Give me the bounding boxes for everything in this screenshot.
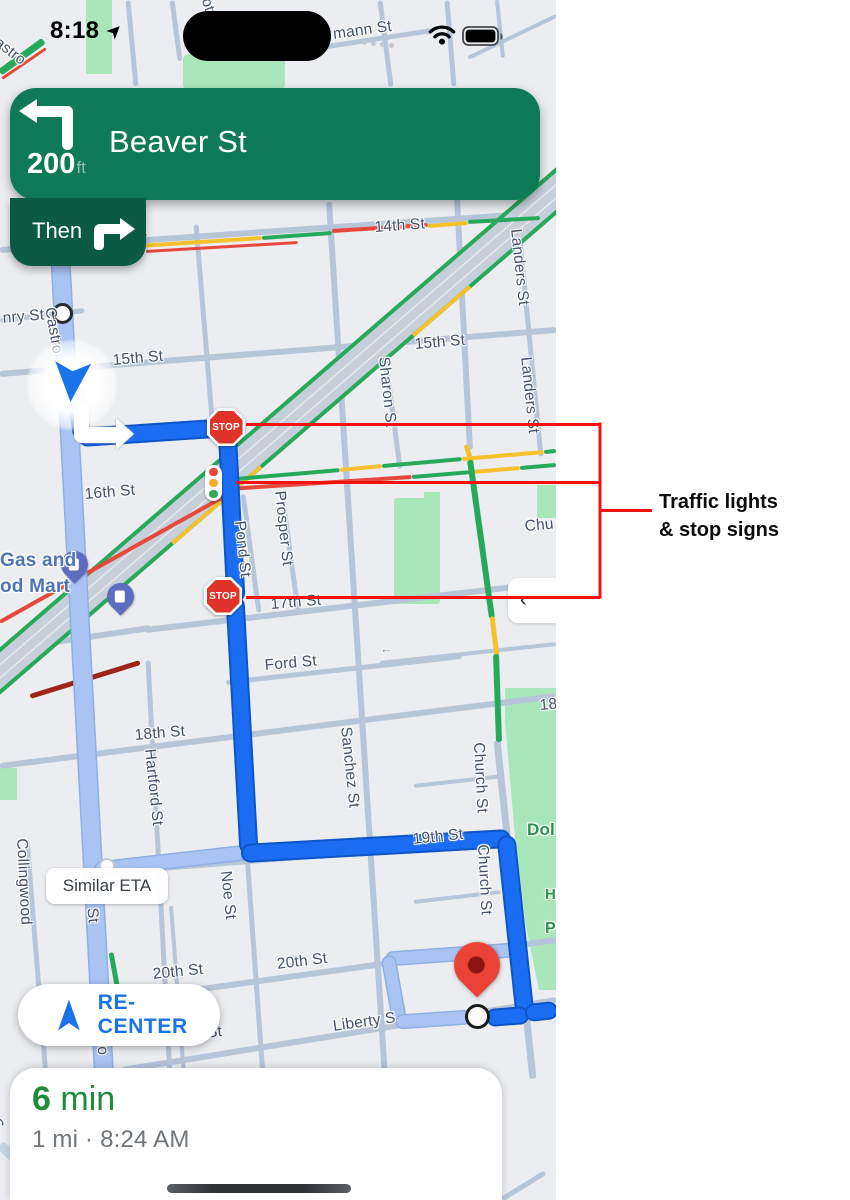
map-label: 15th St (112, 348, 164, 370)
traffic-light-icon (205, 465, 222, 501)
map-label: Prosper St (270, 490, 296, 567)
map-label: Dol (527, 820, 555, 840)
trip-info-sheet[interactable]: 6 min 1 mi · 8:24 AM (10, 1068, 502, 1200)
traffic-segment (493, 654, 502, 742)
collapse-panel-button[interactable]: ‹ (508, 578, 556, 623)
road-line (499, 1170, 547, 1200)
battery-icon (462, 26, 505, 52)
active-route (526, 1003, 556, 1020)
phone-notch (183, 11, 331, 61)
road-line (126, 0, 139, 86)
active-route (243, 831, 510, 861)
map-label: P (545, 920, 556, 938)
similar-eta-chip[interactable]: Similar ETA (46, 868, 168, 904)
navigation-banner[interactable]: 200ft Beaver St (10, 88, 540, 200)
then-maneuver-chip[interactable]: Then (10, 198, 146, 266)
home-indicator[interactable] (167, 1184, 351, 1193)
traffic-segment (382, 457, 462, 468)
map-label: ← (380, 641, 393, 656)
annotation-text: Traffic lights & stop signs (659, 488, 779, 544)
traffic-segment (472, 466, 520, 474)
road-line (378, 0, 394, 86)
wifi-icon (428, 25, 456, 50)
annotation-line (246, 423, 600, 426)
map-label: Sharon St (374, 356, 399, 428)
recenter-button[interactable]: RE-CENTER (18, 984, 220, 1046)
traffic-segment (544, 449, 556, 454)
recenter-label: RE-CENTER (98, 991, 220, 1039)
active-route (228, 598, 257, 853)
google-maps-navigation-screen[interactable]: STOP STOP ott Stmann Stastronry StCastro… (0, 0, 556, 1200)
destination-pin[interactable] (444, 932, 509, 997)
park-area (394, 498, 440, 604)
navigation-arrow-icon (56, 1000, 82, 1031)
map-label: Landers St (506, 228, 532, 306)
road-line (414, 774, 504, 788)
then-label: Then (32, 218, 82, 244)
status-time: 8:18 (50, 17, 99, 45)
map-label: Chu (524, 515, 555, 535)
annotation-line (236, 481, 600, 484)
road-line (170, 0, 183, 60)
map-label: 16th St (84, 482, 136, 504)
map-label: t S (0, 1108, 7, 1134)
road-line (380, 642, 556, 665)
traffic-segment (462, 450, 544, 461)
road-noe (194, 224, 216, 430)
map-label: 18 (539, 695, 556, 714)
map-label: H (545, 886, 556, 903)
map-label: nry St (2, 306, 45, 328)
destination-base-dot (465, 1004, 490, 1029)
map-label: Church St (473, 844, 495, 916)
park-area (424, 492, 440, 506)
map-label: 20th St (152, 961, 204, 984)
map-label: Hartford St (140, 748, 166, 827)
map-label: Sanchez St (336, 726, 362, 809)
map-label: Collingwood (12, 838, 35, 925)
map-label: 14th St (374, 215, 426, 236)
map-label: Noe St (216, 870, 239, 920)
active-route (487, 1008, 527, 1025)
traffic-segment (520, 463, 556, 470)
map-label: od Mart (0, 576, 70, 598)
map-label: 15th St (414, 332, 466, 354)
map-label: Church St (469, 742, 491, 814)
park-area (0, 768, 17, 800)
map-label: Gas and (0, 550, 76, 572)
road-noe (245, 854, 266, 1076)
eta-time: 6 min (32, 1080, 115, 1119)
poi-dots (362, 40, 367, 45)
maneuver-street: Beaver St (109, 124, 247, 160)
road-church (454, 198, 473, 450)
annotation-line (600, 509, 652, 512)
maneuver-distance: 200ft (27, 148, 86, 181)
annotated-screenshot-page: STOP STOP ott Stmann Stastronry StCastro… (0, 0, 850, 1200)
stop-sign-icon: STOP (207, 408, 245, 446)
alternate-route[interactable] (397, 1011, 471, 1028)
traffic-segment (412, 470, 472, 479)
park-area (537, 485, 556, 518)
chevron-left-icon: ‹ (520, 589, 527, 612)
trip-details: 1 mi · 8:24 AM (32, 1126, 190, 1154)
stop-sign-icon: STOP (204, 577, 242, 615)
annotation-line (246, 596, 600, 599)
